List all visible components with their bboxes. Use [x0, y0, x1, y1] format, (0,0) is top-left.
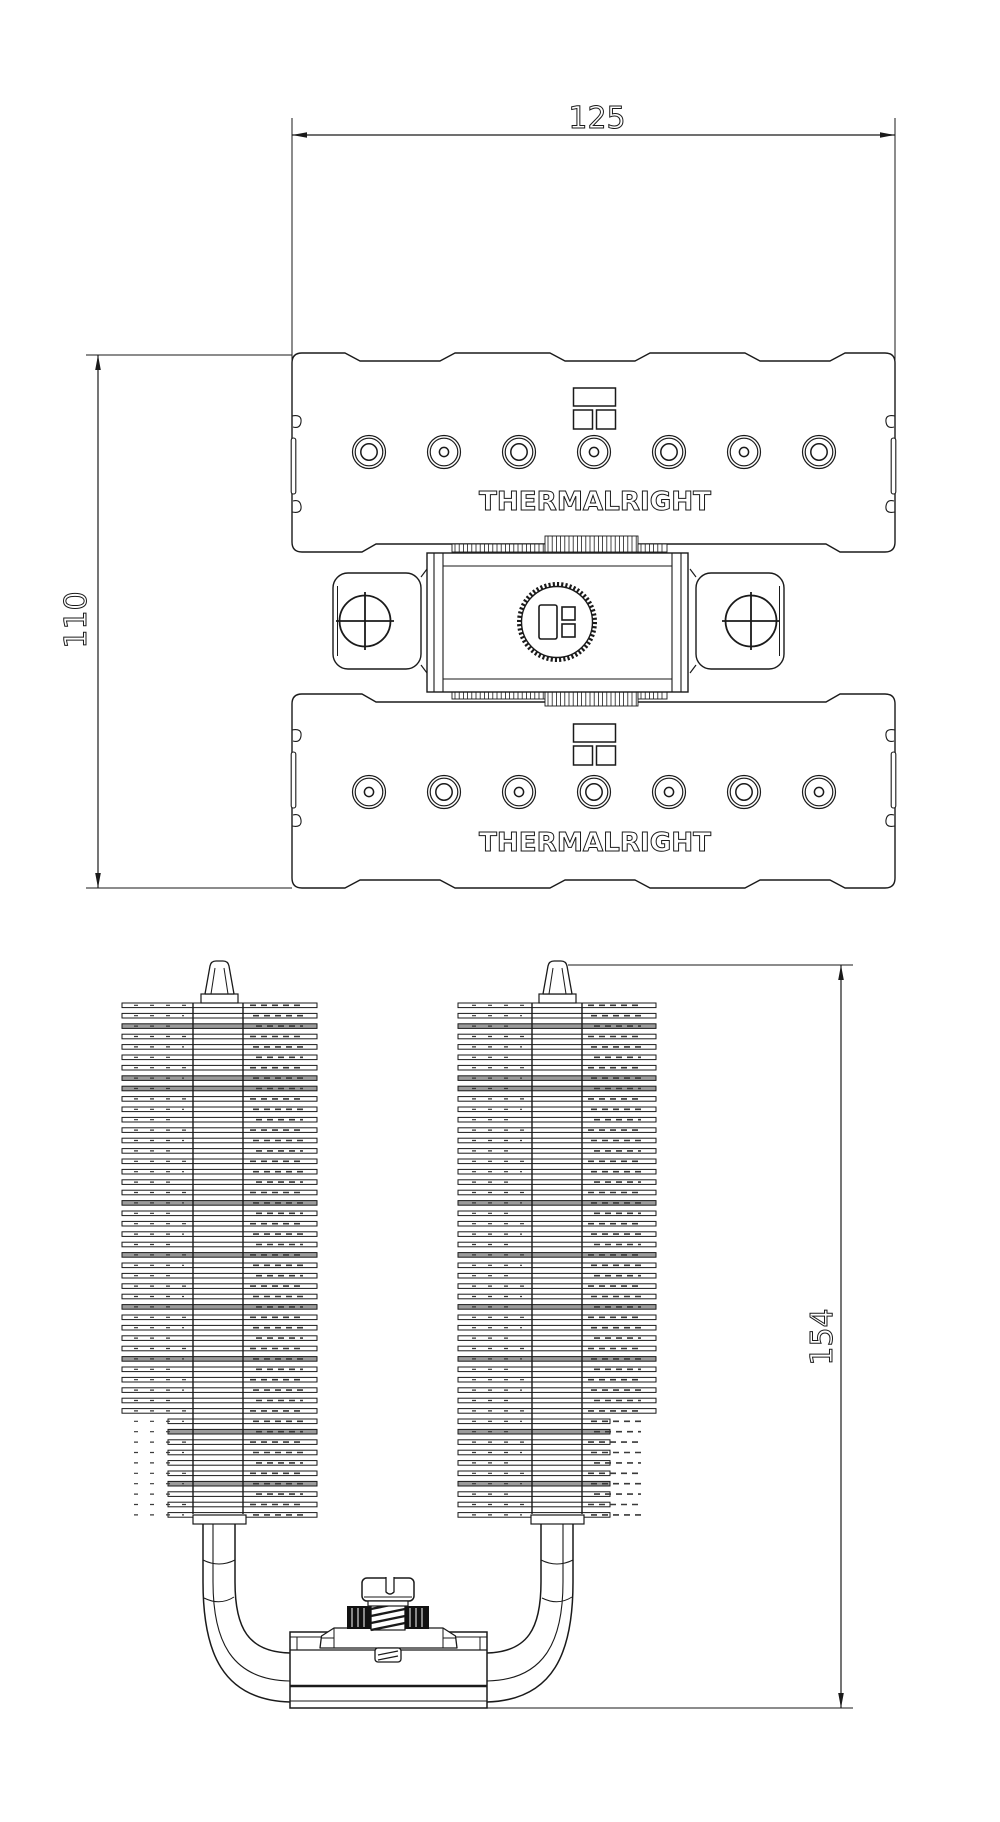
fin-towers [122, 961, 656, 1524]
comb-strip [545, 691, 638, 706]
fin [458, 1502, 610, 1507]
heatpipe-tip [201, 961, 238, 1003]
fin [458, 1336, 656, 1341]
heatpipe-tip [539, 961, 576, 1003]
heatpipe-seam [542, 1597, 572, 1602]
fin [458, 1273, 656, 1278]
fin [458, 1149, 656, 1154]
nut-logo-square [562, 624, 575, 637]
heatpipe-seam [203, 1560, 235, 1564]
hole-pin [439, 447, 448, 456]
fin [458, 1305, 656, 1310]
hole-pin [436, 784, 452, 800]
fin [458, 1440, 610, 1445]
logo-square [574, 410, 593, 429]
hole-pin [739, 447, 748, 456]
pipe-collar [531, 1515, 584, 1524]
cooler-side-view [122, 961, 656, 1708]
tip-collar [201, 994, 238, 1003]
hole-pin [814, 787, 823, 796]
hole-pin [736, 784, 752, 800]
hole-pin [364, 787, 373, 796]
fin [458, 1242, 656, 1247]
dim-height-label: 110 [59, 591, 94, 648]
hole-pin [589, 447, 598, 456]
heatpipe-seam [541, 1560, 573, 1564]
hole-pin [514, 787, 523, 796]
logo-bar [574, 388, 616, 406]
technical-drawing: 125 110 154 THERMALRIGHT THERMALRIGHT [0, 0, 1000, 1822]
ear-shoulder [421, 665, 427, 673]
hole-pin [511, 444, 527, 460]
drawing-page: 125 110 154 THERMALRIGHT THERMALRIGHT [0, 0, 1000, 1822]
fin [458, 1024, 656, 1029]
brand-text-bottom-plate: THERMALRIGHT [479, 828, 711, 858]
arrowhead [880, 132, 895, 138]
fin [458, 1398, 656, 1403]
logo-bar [574, 724, 616, 742]
clip-slit [291, 752, 296, 808]
heatpipe-wall-inner [487, 1524, 563, 1681]
heatpipe-seam [204, 1597, 234, 1602]
fin-tower [122, 961, 317, 1524]
clip-slit [891, 752, 896, 808]
tip-outline [543, 961, 572, 994]
fin [458, 1367, 656, 1372]
dim-side-height-label: 154 [805, 1308, 840, 1365]
heatpipe-wall [203, 1524, 290, 1702]
logo-square [574, 746, 593, 765]
hole-pin [361, 444, 377, 460]
hole-pin [664, 787, 673, 796]
mount-bar [320, 1628, 457, 1648]
hole-pin [661, 444, 677, 460]
fin [458, 1419, 610, 1424]
fin [458, 1055, 656, 1060]
arrowhead [838, 1693, 844, 1708]
brand-text-top-plate: THERMALRIGHT [479, 487, 711, 517]
pipe-collar [193, 1515, 246, 1524]
fin [458, 1471, 610, 1476]
dimension-side-height-154: 154 [805, 1308, 840, 1365]
slot-mask [386, 1575, 395, 1592]
fin [458, 1481, 610, 1486]
ear-shoulder [690, 665, 696, 673]
fin [458, 1492, 610, 1497]
logo-square [597, 746, 616, 765]
hole-pin [586, 784, 602, 800]
heatpipe-wall [235, 1524, 290, 1653]
ear-shoulder [421, 569, 427, 577]
heatpipe-wall [487, 1524, 541, 1653]
knurl-block [405, 1606, 429, 1629]
comb-strip [452, 544, 545, 552]
clip-slit [291, 438, 296, 494]
comb-strip [545, 536, 638, 552]
dim-width-label: 125 [568, 101, 625, 136]
arrowhead [95, 873, 101, 888]
fin-tower [458, 961, 656, 1524]
heatpipe-wall-inner [213, 1524, 290, 1681]
mounting-bracket [333, 553, 784, 692]
clip-slit [891, 438, 896, 494]
nut-logo-bar [539, 605, 557, 639]
heatpipe-wall [487, 1524, 573, 1702]
fin [458, 1429, 610, 1434]
fin [458, 1180, 656, 1185]
fin [458, 1086, 656, 1091]
knurl-block [347, 1606, 371, 1629]
arrowhead [292, 132, 307, 138]
tip-outline [205, 961, 234, 994]
dimension-height-110: 110 [59, 591, 94, 648]
dimension-width-125: 125 [568, 101, 625, 136]
comb-strip [638, 544, 667, 552]
fin [458, 1117, 656, 1122]
logo-square [597, 410, 616, 429]
head-flange [368, 1601, 408, 1606]
nut-logo-square [562, 607, 575, 620]
cooler-top-view: THERMALRIGHT THERMALRIGHT [291, 353, 896, 888]
tip-collar [539, 994, 576, 1003]
fin [458, 1211, 656, 1216]
arrowhead [838, 965, 844, 980]
ear-shoulder [690, 569, 696, 577]
fin [458, 1450, 610, 1455]
fin [458, 1461, 610, 1466]
arrowhead [95, 355, 101, 370]
hole-pin [811, 444, 827, 460]
